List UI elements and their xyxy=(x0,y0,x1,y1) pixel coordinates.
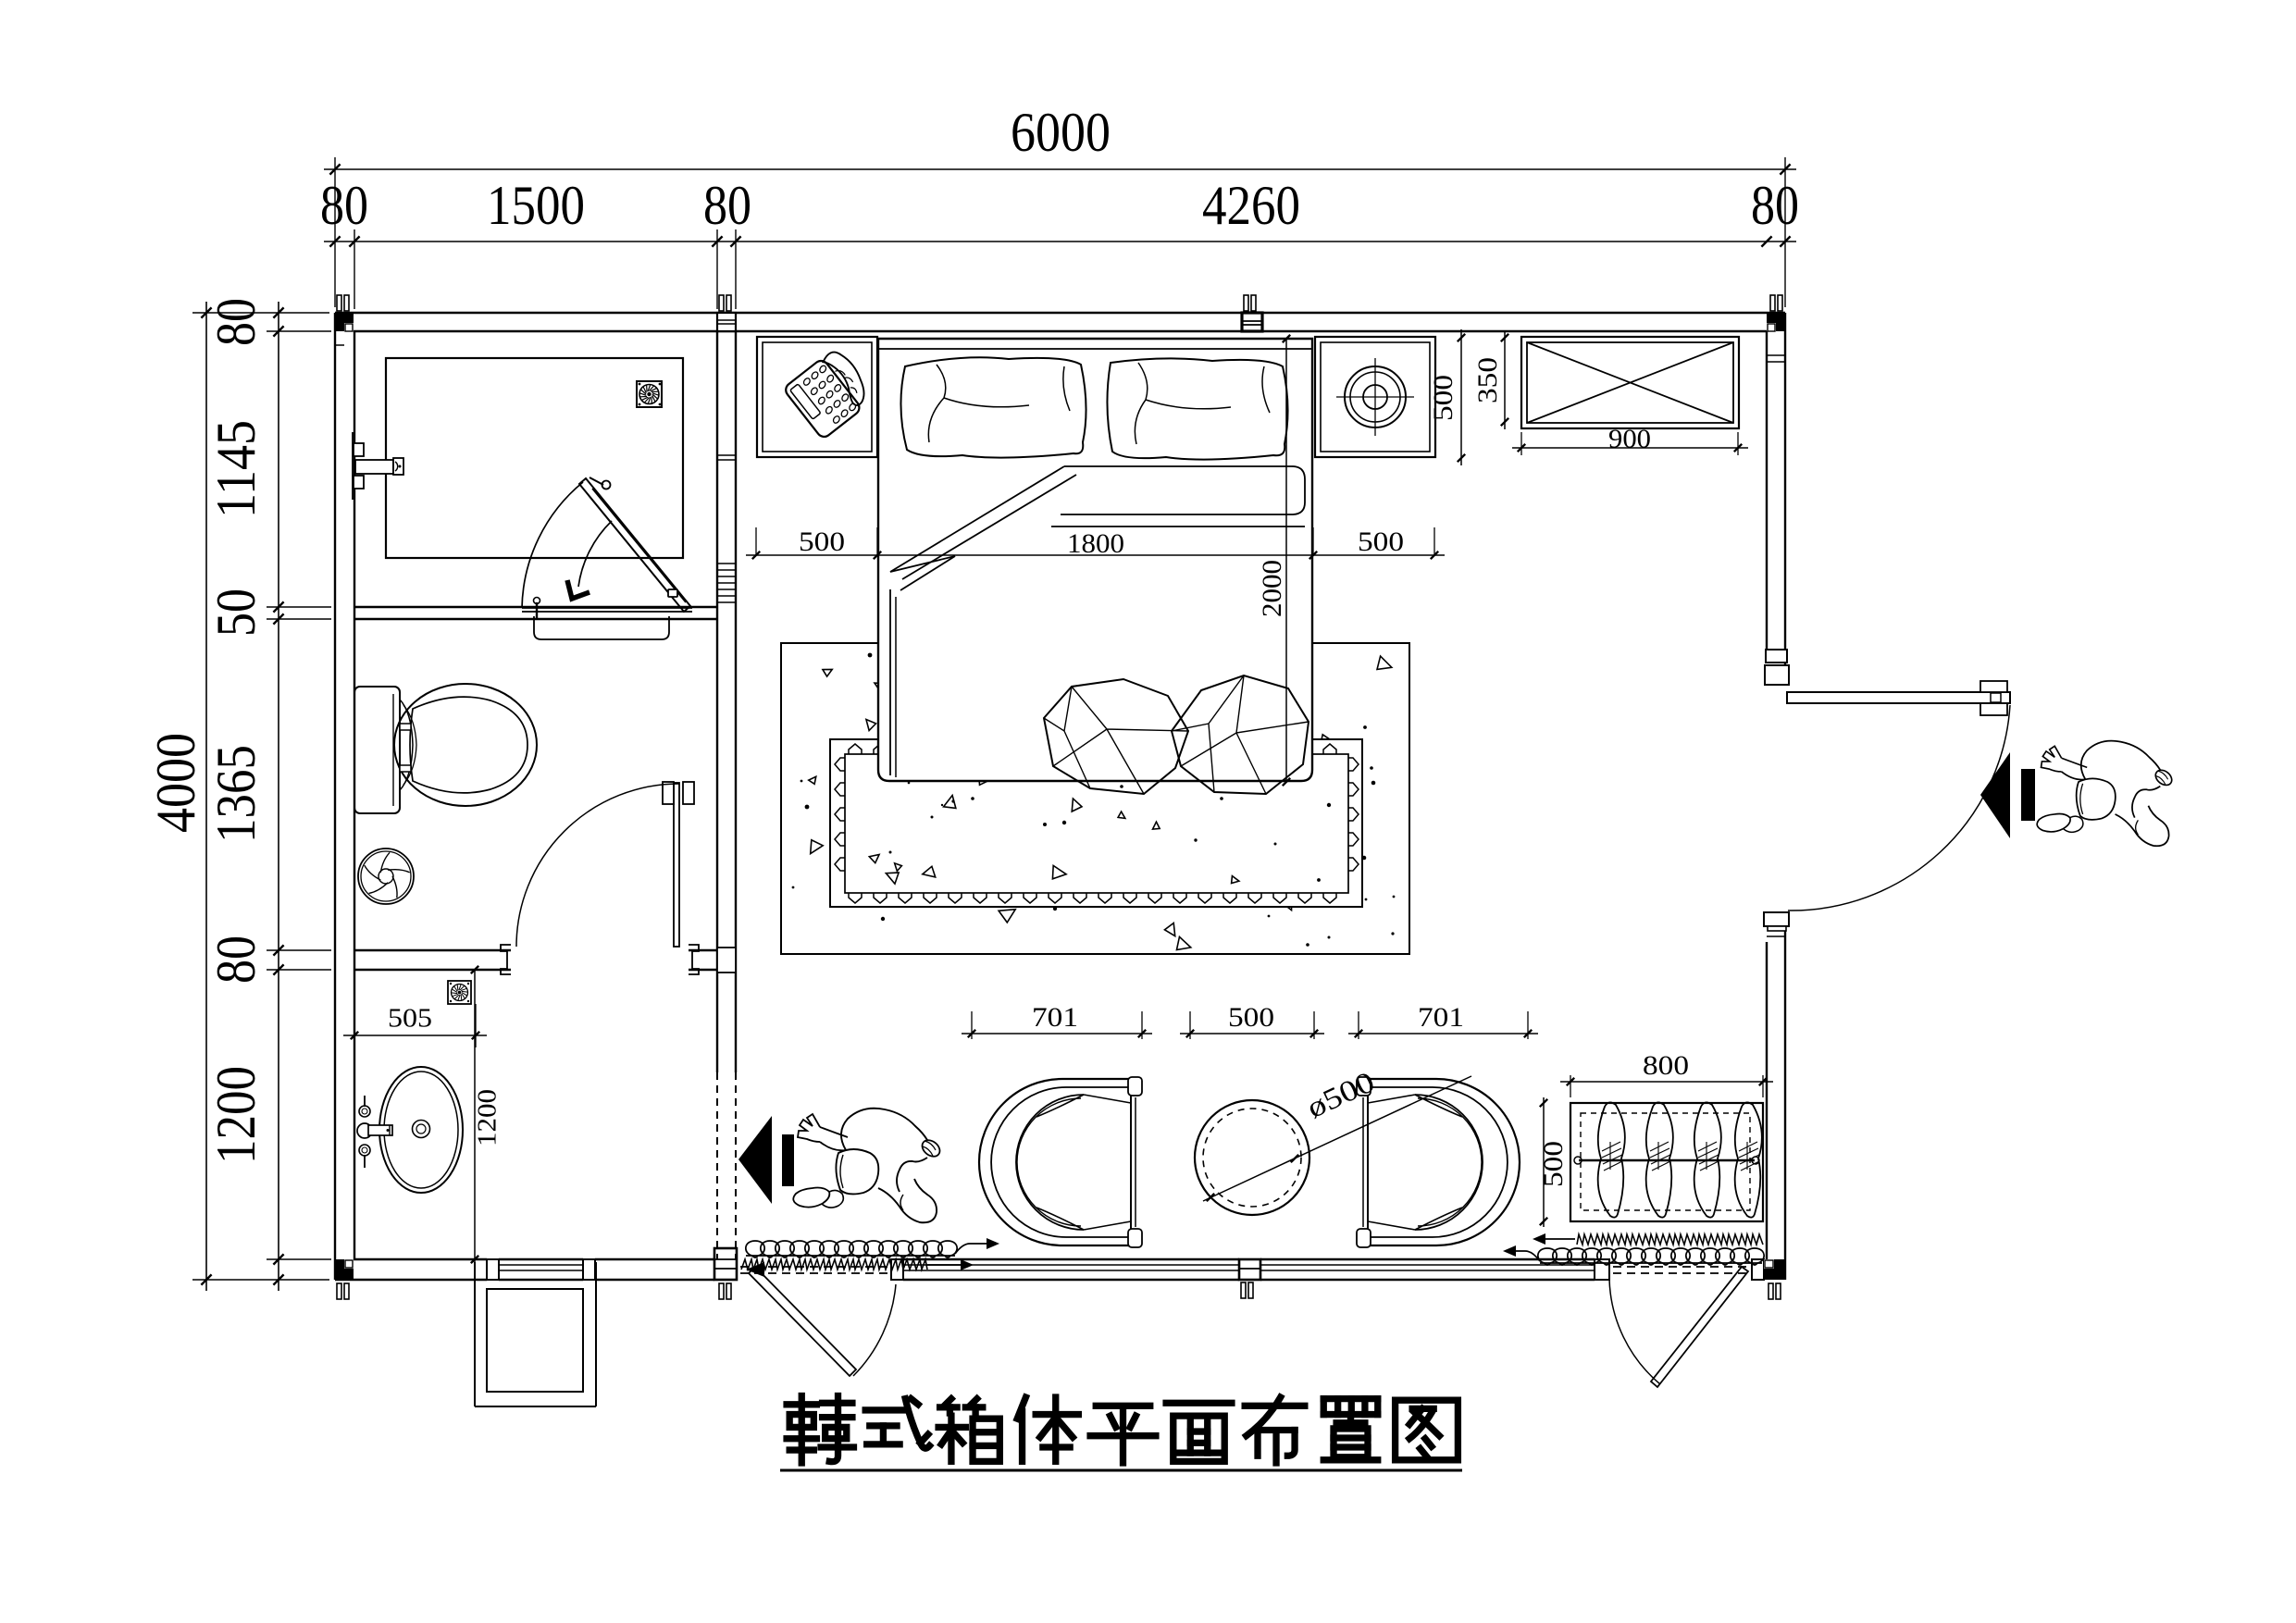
svg-text:4260: 4260 xyxy=(1202,175,1300,236)
svg-text:701: 701 xyxy=(1032,1002,1078,1033)
svg-text:80: 80 xyxy=(1751,175,1799,236)
svg-text:50: 50 xyxy=(205,588,267,637)
svg-text:500: 500 xyxy=(1228,1002,1274,1033)
svg-text:1200: 1200 xyxy=(473,1089,502,1146)
svg-text:1500: 1500 xyxy=(487,175,585,236)
svg-text:1365: 1365 xyxy=(205,745,267,843)
svg-text:500: 500 xyxy=(799,527,845,557)
svg-text:2000: 2000 xyxy=(1257,560,1287,617)
svg-text:4000: 4000 xyxy=(145,733,206,833)
svg-text:1800: 1800 xyxy=(1067,528,1124,559)
svg-text:800: 800 xyxy=(1643,1050,1689,1081)
svg-text:900: 900 xyxy=(1608,425,1651,453)
svg-text:350: 350 xyxy=(1472,357,1503,403)
svg-text:6000: 6000 xyxy=(1011,102,1111,163)
svg-text:1145: 1145 xyxy=(205,420,267,518)
svg-text:80: 80 xyxy=(205,298,267,346)
svg-text:500: 500 xyxy=(1428,375,1458,421)
svg-text:500: 500 xyxy=(1358,527,1404,557)
svg-text:505: 505 xyxy=(388,1004,432,1033)
svg-text:80: 80 xyxy=(205,935,267,984)
svg-text:80: 80 xyxy=(703,175,751,236)
svg-text:1200: 1200 xyxy=(205,1066,267,1164)
svg-text:500: 500 xyxy=(1538,1141,1569,1187)
svg-text:701: 701 xyxy=(1418,1002,1464,1033)
svg-text:80: 80 xyxy=(320,175,368,236)
